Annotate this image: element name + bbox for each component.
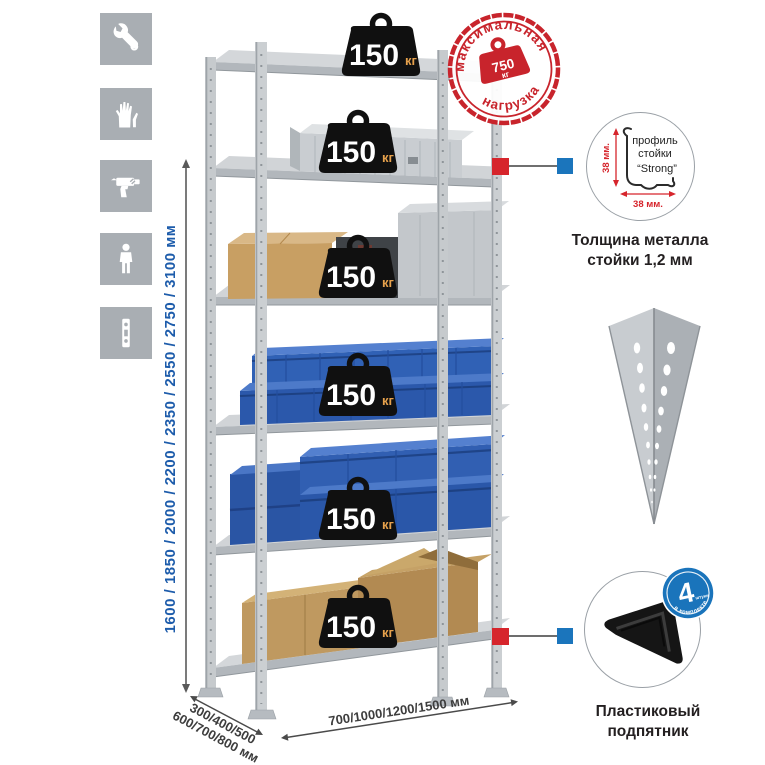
shelf-load-badges: 150 кг 150 кг 150 кг 150 кг [319,16,420,649]
included-quantity-badge: 4 штуки в комплекте [661,566,715,620]
profile-dim-vertical: 38 мм. [601,128,619,187]
svg-text:38 мм.: 38 мм. [633,199,663,210]
load-badge-2: 150 кг [319,113,397,174]
svg-text:кг: кг [382,517,395,532]
foot-caption: Пластиковый подпятник [578,702,718,742]
infographic-canvas: 1600 / 1850 / 2000 / 2200 / 2350 / 2550 … [0,0,765,765]
max-load-stamp: максимальная нагрузка 750 кг [443,8,565,130]
corner-post-image [597,296,712,531]
svg-text:профиль: профиль [632,135,678,147]
svg-text:кг: кг [382,150,395,165]
svg-text:150: 150 [326,379,376,412]
svg-text:кг: кг [382,275,395,290]
svg-text:38 мм.: 38 мм. [601,143,612,173]
height-dimension-line [182,159,190,693]
svg-text:стойки: стойки [638,148,672,160]
svg-text:150: 150 [326,611,376,644]
svg-text:150: 150 [326,136,376,169]
svg-text:150: 150 [349,39,399,72]
profile-callout-marker [492,158,573,175]
svg-text:кг: кг [405,53,418,68]
post-profile-detail: 38 мм. 38 мм. профиль стойки “Strong” [586,112,695,221]
svg-text:150: 150 [326,261,376,294]
foot-callout-marker [492,628,573,645]
profile-dim-horizontal: 38 мм. [620,191,676,210]
svg-text:кг: кг [382,393,395,408]
profile-label: профиль стойки “Strong” [632,135,678,175]
profile-caption: Толщина металла стойки 1,2 мм [565,231,715,271]
svg-text:кг: кг [382,625,395,640]
load-badge-1: 150 кг [342,16,420,77]
svg-text:“Strong”: “Strong” [637,163,677,175]
svg-text:150: 150 [326,503,376,536]
